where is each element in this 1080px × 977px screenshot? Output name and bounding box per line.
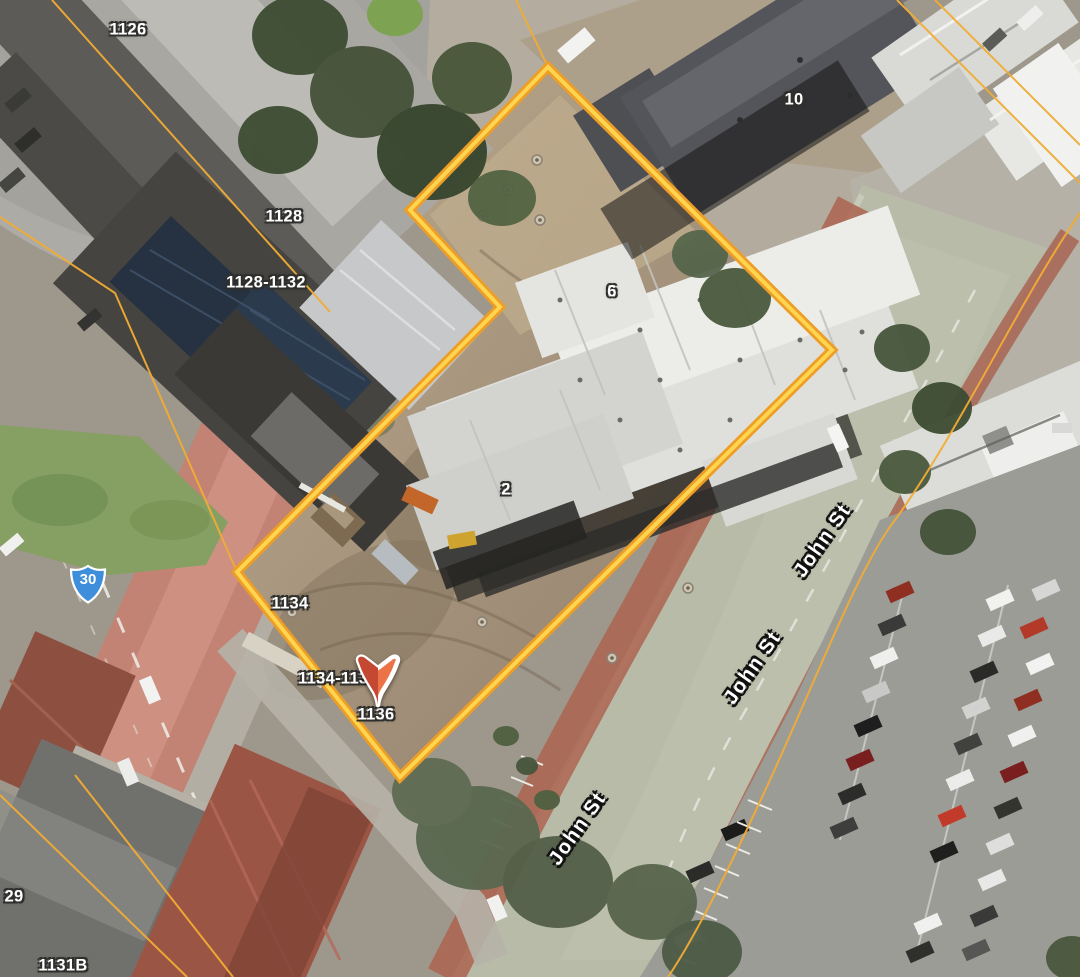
marker-pin-icon	[351, 653, 405, 713]
aerial-map-canvas[interactable]: 1126 10 1128 1128-1132 6 2 1134 1134-113…	[0, 0, 1080, 977]
route-shield-number: 30	[69, 571, 107, 588]
route-shield-30: 30	[69, 564, 107, 604]
selected-property-marker-pin[interactable]	[351, 653, 405, 713]
aerial-imagery	[0, 0, 1080, 977]
